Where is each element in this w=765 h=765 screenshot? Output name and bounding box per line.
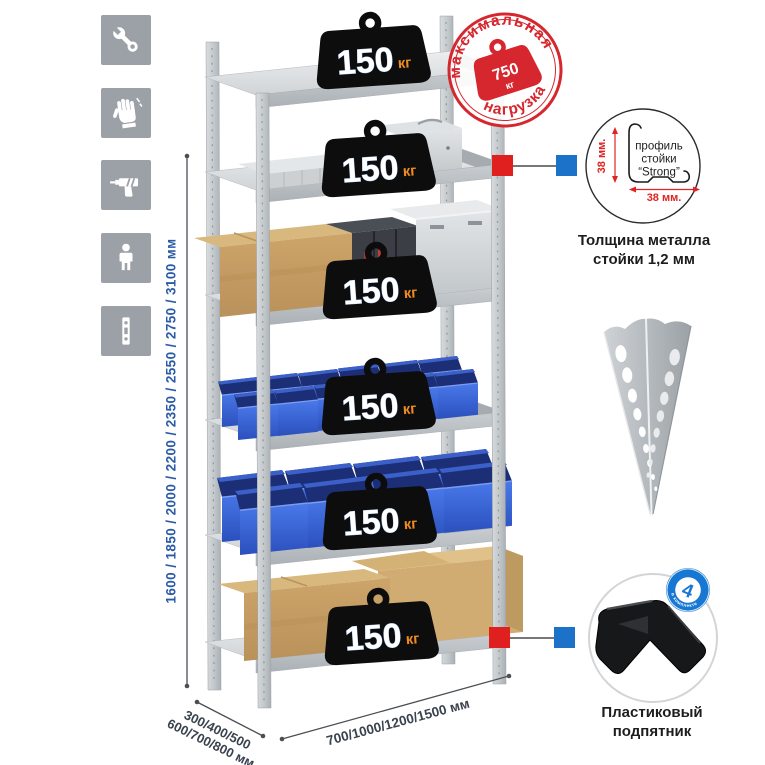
max-load-stamp: максимальная нагрузка 750 кг bbox=[437, 2, 573, 138]
shelf-load-badge-5: 150кг bbox=[312, 471, 444, 551]
shelf-load-badge-2: 150кг bbox=[311, 118, 443, 198]
profile-label-line2: стойки bbox=[635, 154, 683, 167]
connector-bottom bbox=[489, 627, 575, 648]
profile-label-line3: “Strong” bbox=[635, 167, 683, 180]
profile-caption-line1: Толщина металла bbox=[578, 231, 710, 250]
shelf-load-badge-1: 150кг bbox=[306, 10, 438, 90]
profile-dim-vertical: 38 мм. bbox=[596, 139, 608, 174]
shelf-load-badge-6: 150кг bbox=[314, 586, 446, 666]
width-dimension-line bbox=[280, 674, 512, 742]
foot-caption-line1: Пластиковый bbox=[601, 703, 702, 722]
connector-top bbox=[492, 155, 577, 176]
shelving-infographic: 150кг 150кг 150кг 150кг 150кг bbox=[0, 0, 765, 765]
profile-caption-line2: стойки 1,2 мм bbox=[578, 250, 710, 269]
profile-label-line1: профиль bbox=[635, 141, 683, 154]
height-dimension-label: 1600 / 1850 / 2000 / 2200 / 2350 / 2550 … bbox=[164, 238, 179, 603]
shelf-load-badge-4: 150кг bbox=[311, 356, 443, 436]
profile-label: профиль стойки “Strong” bbox=[635, 141, 683, 180]
height-dimension-line bbox=[185, 154, 190, 689]
shelf-load-badge-3: 150кг bbox=[312, 240, 444, 320]
profile-dim-horizontal: 38 мм. bbox=[647, 192, 682, 204]
kit-count-badge: 4 в комплекте bbox=[665, 567, 711, 613]
foot-caption-line2: подпятник bbox=[601, 722, 702, 741]
foot-caption: Пластиковый подпятник bbox=[601, 703, 702, 741]
angle-post-image bbox=[604, 319, 691, 516]
profile-caption: Толщина металла стойки 1,2 мм bbox=[578, 231, 710, 269]
